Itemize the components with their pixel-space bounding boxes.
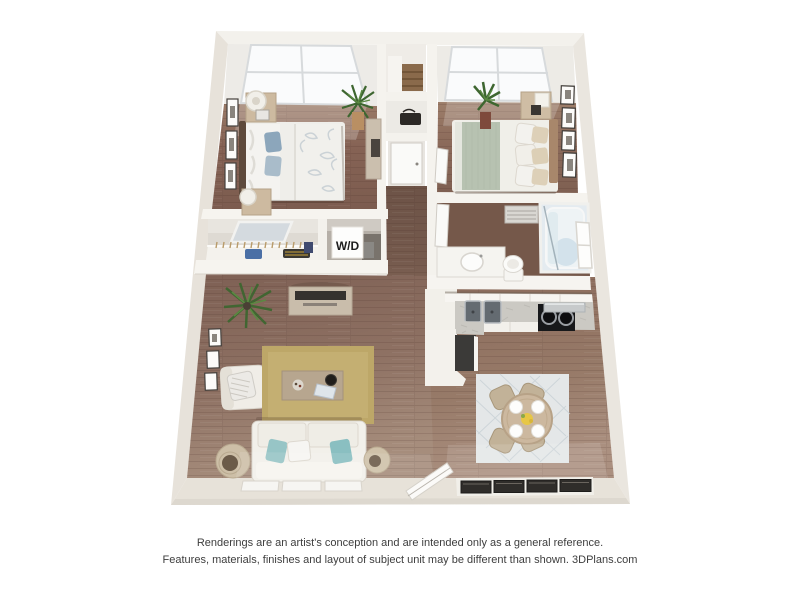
svg-text:Features, materials, finishes: Features, materials, finishes and layout… xyxy=(163,554,638,566)
svg-text:Renderings are an artist's con: Renderings are an artist's conception an… xyxy=(197,537,603,549)
svg-text:W/D: W/D xyxy=(336,239,360,253)
